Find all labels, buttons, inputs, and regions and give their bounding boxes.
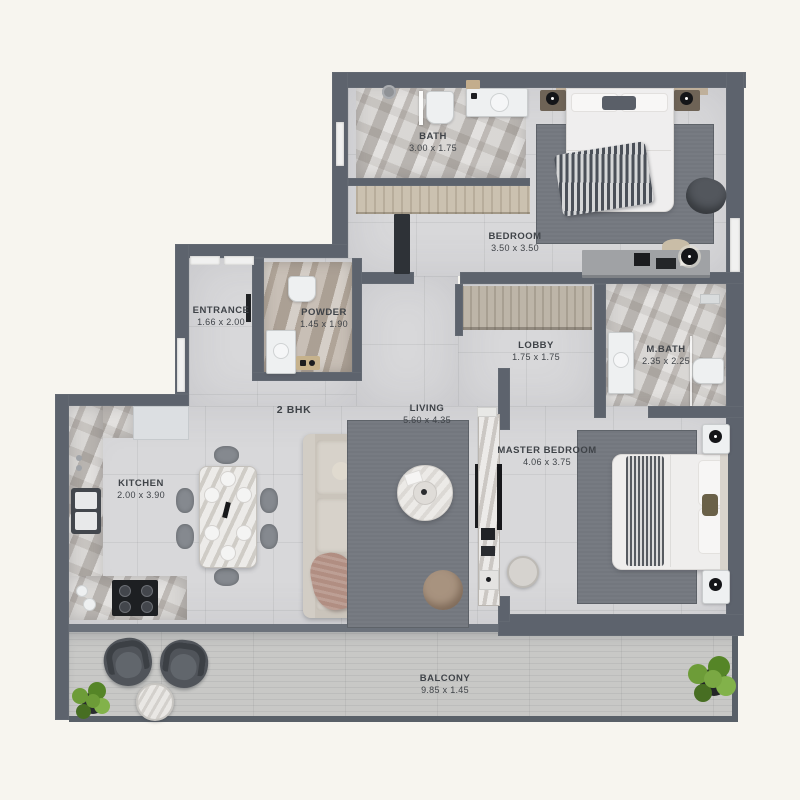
wall-top	[332, 72, 746, 88]
label-powder: POWDER 1.45 x 1.90	[300, 307, 348, 329]
kitchen-knob-2	[76, 465, 82, 471]
master-bed-seam	[670, 455, 671, 567]
label-living: LIVING 5.60 x 4.35	[403, 403, 451, 425]
plate-5	[236, 525, 252, 541]
balcony-chair-1-back	[104, 638, 151, 676]
burner-2	[141, 585, 153, 597]
mbath-shower-glass	[690, 336, 692, 406]
label-entrance-name: ENTRANCE	[193, 305, 250, 316]
bath-sink	[490, 93, 509, 112]
dining-chair-right-1	[260, 488, 278, 513]
balcony-chair-2-back	[162, 640, 208, 677]
unit-type-text: 2 BHK	[277, 404, 312, 416]
label-balcony-dims: 9.85 x 1.45	[420, 685, 470, 695]
kitchen-dish-1	[76, 585, 88, 597]
plate-3	[236, 487, 252, 503]
lamp-left	[546, 92, 559, 105]
dresser-tv	[634, 253, 650, 266]
lobby-wardrobe	[462, 286, 592, 330]
master-headboard	[720, 450, 728, 572]
label-mbath-name: M.BATH	[642, 344, 690, 355]
label-lobby: LOBBY 1.75 x 1.75	[512, 340, 560, 362]
label-powder-name: POWDER	[300, 307, 348, 318]
master-cushion-olive	[702, 494, 718, 516]
kitchen-cabinet-white	[133, 406, 189, 440]
powder-accessory-2	[309, 360, 315, 366]
console-cabinet-knob	[486, 577, 491, 582]
label-lobby-dims: 1.75 x 1.75	[512, 352, 560, 362]
sofa-cushion-2	[316, 498, 351, 553]
burner-3	[119, 601, 131, 613]
plate-2	[204, 487, 220, 503]
wall-kitchen-top	[55, 394, 189, 406]
console-shelf	[477, 407, 497, 417]
bed-cushion-dark	[602, 96, 636, 110]
corridor-cabinet	[394, 214, 410, 274]
label-master-bedroom-name: MASTER BEDROOM	[497, 445, 596, 456]
label-balcony-name: BALCONY	[420, 673, 470, 684]
entrance-closet-slot-1	[190, 256, 220, 265]
bath-mat	[466, 80, 480, 89]
label-mbath-dims: 2.35 x 2.25	[642, 356, 690, 366]
label-bath: BATH 3.00 x 1.75	[409, 131, 457, 153]
wall-right	[726, 72, 744, 636]
label-bedroom-dims: 3.50 x 3.50	[488, 243, 541, 253]
mbath-sink	[613, 352, 629, 368]
wall-left	[55, 394, 69, 720]
label-master-bedroom: MASTER BEDROOM 4.06 x 3.75	[497, 445, 596, 467]
tv-living-side	[475, 464, 478, 528]
master-lamp-top	[709, 430, 722, 443]
bedroom-closet	[356, 186, 530, 214]
wall-master-bottom	[498, 614, 744, 636]
kitchen-sink-bowl-1	[75, 492, 97, 509]
wall-lobby-left	[455, 284, 463, 336]
label-bath-dims: 3.00 x 1.75	[409, 143, 457, 153]
plate-4	[204, 525, 220, 541]
balcony-railing-bottom	[69, 716, 738, 722]
label-living-dims: 5.60 x 4.35	[403, 415, 451, 425]
powder-accessory-1	[300, 360, 306, 366]
console-equipment-2	[481, 546, 495, 556]
bath-partition	[419, 91, 423, 125]
kitchen-knob-1	[76, 455, 82, 461]
entrance-closet-slot-2	[224, 256, 254, 265]
console-equipment-1	[481, 528, 495, 540]
dining-chair-right-2	[260, 524, 278, 549]
label-bath-name: BATH	[409, 131, 457, 142]
label-bedroom-name: BEDROOM	[488, 231, 541, 242]
balcony-plant-left	[70, 680, 114, 724]
floor-lamp	[681, 248, 698, 265]
label-lobby-name: LOBBY	[512, 340, 560, 351]
bath-window-niche	[336, 122, 344, 166]
burner-4	[141, 601, 153, 613]
mbath-toilet	[692, 358, 724, 384]
label-bedroom: BEDROOM 3.50 x 3.50	[488, 231, 541, 253]
wall-mbath-bottom	[648, 406, 744, 418]
wall-mbath-left	[594, 284, 606, 418]
dining-chair-top	[214, 446, 239, 464]
label-master-bedroom-dims: 4.06 x 3.75	[497, 457, 596, 467]
bedroom-window-niche	[730, 218, 740, 272]
mbath-shelf	[700, 294, 720, 304]
label-unit-type: 2 BHK	[277, 404, 312, 416]
dresser-device	[656, 258, 676, 269]
wall-powder-right	[352, 258, 362, 380]
wall-bath-bottom	[348, 178, 530, 186]
plant-leaf	[86, 694, 100, 708]
powder-toilet	[288, 276, 316, 302]
label-kitchen-dims: 2.00 x 3.90	[117, 490, 165, 500]
label-entrance: ENTRANCE 1.66 x 2.00	[193, 305, 250, 327]
dining-chair-left-1	[176, 488, 194, 513]
plate-1	[220, 471, 236, 487]
label-kitchen: KITCHEN 2.00 x 3.90	[117, 478, 165, 500]
pouf	[423, 570, 463, 610]
label-entrance-dims: 1.66 x 2.00	[193, 317, 250, 327]
plate-6	[220, 545, 236, 561]
burner-1	[119, 585, 131, 597]
kitchen-sink-bowl-2	[75, 512, 97, 530]
coffee-table-item	[421, 489, 427, 495]
label-balcony: BALCONY 9.85 x 1.45	[420, 673, 470, 695]
shower-head	[382, 85, 396, 99]
entrance-window-niche	[177, 338, 185, 392]
kitchen-dish-2	[83, 598, 96, 611]
bath-toilet	[426, 91, 454, 124]
wall-powder-left	[252, 258, 264, 380]
tv-master-side	[497, 464, 502, 530]
balcony-plant-right	[686, 654, 740, 708]
master-lamp-bottom	[709, 578, 722, 591]
master-striped-throw	[626, 456, 664, 566]
dining-chair-bottom	[214, 568, 239, 586]
plant-leaf	[704, 670, 722, 688]
bath-faucet	[471, 93, 477, 99]
powder-sink	[273, 343, 289, 359]
floor-plan: BATH 3.00 x 1.75 BEDROOM 3.50 x 3.50 ENT…	[0, 0, 800, 800]
balcony-table	[136, 683, 174, 721]
label-living-name: LIVING	[403, 403, 451, 414]
vanity-stool	[507, 556, 539, 588]
label-mbath: M.BATH 2.35 x 2.25	[642, 344, 690, 366]
dining-chair-left-2	[176, 524, 194, 549]
label-kitchen-name: KITCHEN	[117, 478, 165, 489]
hall-floor	[356, 276, 458, 406]
label-powder-dims: 1.45 x 1.90	[300, 319, 348, 329]
lamp-right	[680, 92, 693, 105]
